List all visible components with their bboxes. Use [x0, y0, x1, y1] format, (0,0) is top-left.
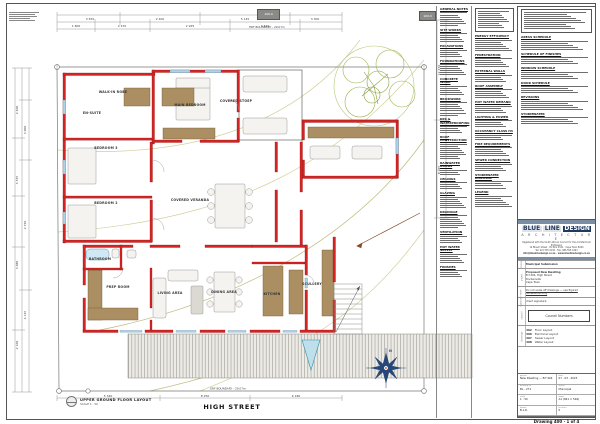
svg-text:3 900: 3 900: [23, 126, 27, 135]
note-line: [440, 19, 462, 20]
note-line: [440, 158, 460, 159]
notes-heading: HOT WATER DEMAND: [475, 101, 514, 104]
svg-text:1 800: 1 800: [72, 24, 81, 28]
note-line: [9, 18, 30, 19]
note-line: [440, 56, 462, 57]
notes-section: [475, 8, 514, 32]
note-line: [440, 270, 467, 271]
note-line: [440, 106, 460, 107]
note-line: [475, 75, 512, 76]
notes-section: STORMWATER: [521, 113, 592, 124]
note-line: [440, 205, 464, 206]
note-line: [440, 156, 458, 157]
notes-section: EXCAVATIONS: [440, 45, 468, 56]
note-line: [440, 199, 458, 200]
room-label: LIVING AREA: [157, 291, 182, 295]
note-line: [440, 17, 460, 18]
level-marker: 100.0: [257, 9, 280, 20]
title-block-strip: AREAS SCHEDULESCHEDULE OF FINISHESWINDOW…: [517, 6, 596, 418]
notes-section: HOT WATER SUPPLY: [440, 246, 468, 263]
notes-section: STORMWATER DISPOSAL: [475, 174, 514, 189]
notes-heading: WINDOW SCHEDULE: [521, 67, 592, 70]
drawing-number: 408: [526, 340, 532, 344]
note-line: [521, 92, 578, 93]
info-cell: paperA1 (841 × 594): [557, 395, 596, 406]
notes-heading: EXTERNAL WALLS: [475, 70, 514, 73]
note-line: [475, 62, 503, 63]
note-line: [440, 88, 458, 89]
note-line: [475, 48, 509, 49]
title-block-spacer: [518, 346, 595, 373]
info-grid: projectNew Dwelling — Erf 404date07 . 03…: [518, 373, 595, 416]
room-label: KITCHEN: [263, 292, 280, 296]
room-label: COVERED STOEP: [220, 99, 252, 103]
note-line: [475, 139, 503, 140]
note-line: [521, 86, 588, 87]
note-line: [475, 200, 503, 201]
note-line: [440, 188, 462, 189]
note-line: [475, 122, 501, 123]
note-line: [475, 183, 501, 184]
note-line: [440, 102, 467, 103]
note-line: [440, 41, 464, 42]
note-line: [475, 164, 512, 165]
note-line: [440, 240, 460, 241]
svg-text:6 180: 6 180: [292, 394, 301, 398]
note-line: [475, 112, 506, 113]
notes-value: Do not scale off drawings — use figured …: [526, 289, 592, 296]
notes-heading: GLAZING: [440, 192, 468, 195]
svg-text:8 250: 8 250: [201, 394, 210, 398]
note-line: [440, 64, 467, 65]
note-line: [475, 46, 506, 47]
info-cell: drawnB.L.D.: [518, 406, 557, 417]
firm-logo: BLUE LINE DESIGN A R C H I T E C T U R E…: [518, 224, 595, 257]
council-row-label: council: [520, 312, 523, 320]
note-line: [521, 74, 568, 75]
notes-heading: ROOF ASSEMBLY: [475, 85, 514, 88]
note-line: [9, 12, 39, 13]
note-line: [440, 115, 458, 116]
notes-heading: LEGEND: [475, 191, 514, 194]
info-cell-value: 0: [559, 409, 594, 412]
note-line: [524, 24, 566, 25]
note-line: [475, 206, 512, 207]
note-line: [475, 91, 501, 92]
notes-column-a: GENERAL NOTESSITE WORKSEXCAVATIONSFOUNDA…: [436, 6, 470, 418]
note-line: [475, 153, 506, 154]
view-title-block: UPPER GROUND FLOOR LAYOUT SCALE 1 : 50: [66, 396, 151, 407]
boundary-label-top: ERF BOUNDARY - 29.07m: [249, 25, 285, 29]
note-line: [475, 60, 501, 61]
info-cell: date07 . 03 . 2023: [557, 374, 596, 385]
note-line: [521, 78, 578, 79]
note-line: [440, 242, 462, 243]
drawing-title: Water Layout: [535, 340, 554, 344]
note-line: [440, 154, 466, 155]
note-line: [521, 63, 578, 64]
svg-text:2 400: 2 400: [156, 17, 165, 21]
room-label: EN-SUITE: [83, 111, 101, 115]
notes-heading: GENERAL NOTES: [440, 8, 468, 11]
svg-text:3 300: 3 300: [311, 17, 320, 21]
notes-heading: STORMWATER: [521, 113, 592, 116]
notes-section: REVISIONS: [521, 96, 592, 110]
status-row-label: status: [520, 261, 523, 268]
note-line: [521, 47, 578, 48]
note-line: [440, 132, 462, 133]
note-line: [440, 90, 460, 91]
note-line: [524, 20, 581, 21]
note-line: [440, 113, 466, 114]
brand-word-blue: BLUE: [522, 226, 542, 233]
brand-word-design: DESIGN: [563, 226, 592, 233]
note-line: [440, 201, 460, 202]
note-line: [475, 151, 503, 152]
note-line: [478, 11, 509, 12]
notes-heading: FINISHES: [440, 266, 468, 269]
notes-heading: FOUNDATIONS: [440, 60, 468, 63]
notes-heading: ENERGY EFFICIENCY: [475, 35, 514, 38]
notes-column-c: AREAS SCHEDULESCHEDULE OF FINISHESWINDOW…: [518, 7, 595, 219]
note-line: [521, 117, 588, 118]
note-line: [478, 19, 507, 20]
info-cell-value: 07 . 03 . 2023: [559, 377, 594, 380]
note-line: [440, 150, 462, 151]
notes-heading: EXCAVATIONS: [440, 45, 468, 48]
tree: [334, 46, 415, 126]
note-line: [475, 126, 506, 127]
staircase: [334, 284, 362, 334]
note-line: [521, 107, 578, 108]
note-line: [475, 79, 503, 80]
note-line: [521, 105, 573, 106]
note-line: [524, 12, 586, 13]
note-line: [440, 203, 462, 204]
note-line: [475, 149, 501, 150]
svg-text:5 145: 5 145: [241, 17, 250, 21]
note-line: [475, 108, 501, 109]
corner-notes: [9, 12, 39, 22]
note-line: [475, 58, 512, 59]
svg-text:4 470: 4 470: [118, 24, 127, 28]
note-line: [521, 121, 573, 122]
note-line: [521, 41, 588, 42]
note-line: [440, 94, 464, 95]
info-cell: drawing noBL - 271: [518, 385, 557, 396]
notes-heading: HOT WATER SUPPLY: [440, 246, 468, 253]
notes-section: FINISHES: [440, 266, 468, 277]
level-marker-value: 100.0: [264, 13, 273, 16]
north-label: N: [389, 349, 392, 353]
info-cell: revision0: [557, 406, 596, 417]
note-line: [440, 72, 464, 73]
info-cell: projectNew Dwelling — Erf 404: [518, 374, 557, 385]
note-line: [521, 49, 583, 50]
notes-heading: REVISIONS: [521, 96, 592, 99]
notes-section: RAINWATER GOODS: [440, 162, 468, 175]
view-scale: SCALE 1 : 50: [80, 402, 151, 406]
notes-section: EXTERNAL WALLS: [475, 70, 514, 81]
note-line: [440, 144, 467, 145]
level-marker: 100.0: [419, 11, 436, 21]
project-line: Cape Town: [526, 281, 592, 285]
notes-section: SEWER CONNECTION: [475, 159, 514, 170]
signature-value: client signature:: [526, 300, 592, 304]
note-line: [478, 15, 502, 16]
note-line: [478, 13, 500, 14]
leader-arrow: [357, 213, 420, 248]
project-row-label: project: [520, 274, 523, 282]
note-line: [440, 272, 458, 273]
svg-text:2 925: 2 925: [186, 24, 195, 28]
notes-section: HOT WATER DEMAND: [475, 101, 514, 112]
notes-section: VENTILATION: [440, 231, 468, 242]
note-line: [440, 128, 458, 129]
firm-contact-line: info@bluelinedesign.co.za · www.blueline…: [521, 253, 592, 256]
note-line: [475, 64, 506, 65]
note-line: [475, 81, 506, 82]
note-line: [440, 172, 458, 173]
svg-text:4 125: 4 125: [23, 311, 27, 320]
note-line: [475, 66, 509, 67]
note-line: [440, 52, 458, 53]
svg-text:2 740: 2 740: [23, 221, 27, 230]
note-line: [524, 18, 576, 19]
notes-section: LEGEND: [475, 191, 514, 207]
note-line: [524, 22, 585, 23]
note-line: [475, 147, 512, 148]
note-line: [440, 215, 467, 216]
notes-section: [521, 9, 592, 33]
info-cell-value: B.L.D.: [520, 409, 554, 412]
note-line: [475, 120, 512, 121]
notes-heading: DPC & WATERPROOFING: [440, 118, 468, 125]
note-line: [475, 89, 512, 90]
info-cell-value: A1 (841 × 594): [559, 398, 594, 401]
note-line: [475, 44, 503, 45]
note-line: [440, 146, 458, 147]
note-line: [440, 21, 464, 22]
note-line: [440, 33, 467, 34]
notes-heading: BRICKWORK: [440, 98, 468, 101]
note-line: [440, 104, 458, 105]
view-reference-icon: [66, 396, 77, 407]
note-line: [440, 219, 460, 220]
note-line: [475, 135, 512, 136]
note-line: [475, 40, 512, 41]
room-label: BEDROOM 3: [94, 146, 117, 150]
note-line: [440, 221, 462, 222]
notes-section: ROOF CONSTRUCTION: [440, 136, 468, 159]
note-line: [440, 50, 467, 51]
note-line: [475, 168, 503, 169]
notes-heading: SCHEDULE OF FINISHES: [521, 53, 592, 56]
notes-section: AREAS SCHEDULE: [521, 36, 592, 50]
timber-deck: [128, 334, 472, 378]
note-line: [440, 54, 460, 55]
note-line: [475, 204, 509, 205]
note-line: [475, 137, 501, 138]
note-line: [440, 238, 458, 239]
note-line: [440, 217, 458, 218]
note-line: [521, 61, 573, 62]
note-line: [521, 59, 568, 60]
note-line: [440, 223, 464, 224]
svg-text:4 535: 4 535: [15, 176, 19, 185]
note-line: [475, 124, 503, 125]
note-line: [440, 254, 467, 255]
note-line: [440, 110, 464, 111]
note-line: [9, 20, 35, 21]
drawing-list: 402Floor Layout406Electrical Layout407Se…: [526, 328, 592, 345]
note-line: [440, 15, 458, 16]
note-line: [524, 14, 567, 15]
room-label: BATHROOM: [89, 257, 111, 261]
notes-heading: FIRE REQUIREMENTS: [475, 143, 514, 146]
notes-section: SITE WORKS: [440, 29, 468, 43]
notes-heading: AREAS SCHEDULE: [521, 36, 592, 39]
room-label: COVERED VERANDA: [171, 198, 209, 202]
notes-heading: ROOF CONSTRUCTION: [440, 136, 468, 143]
note-line: [524, 16, 571, 17]
note-line: [9, 16, 37, 17]
notes-section: DRAINAGE: [440, 211, 468, 229]
notes-heading: SITE WORKS: [440, 29, 468, 32]
note-line: [475, 50, 512, 51]
status-row: status Municipal Submission: [518, 260, 595, 268]
notes-heading: LIGHTING & POWER: [475, 116, 514, 119]
note-line: [440, 276, 462, 277]
note-line: [440, 236, 467, 237]
notes-row-label: notes: [520, 289, 523, 295]
note-line: [475, 110, 503, 111]
note-line: [440, 186, 460, 187]
room-label: DINING AREA: [211, 290, 237, 294]
note-line: [521, 43, 568, 44]
note-line: [475, 188, 506, 189]
notes-row: notes Do not scale off drawings — use fi…: [518, 286, 595, 297]
note-line: [440, 182, 467, 183]
note-line: [440, 260, 462, 261]
note-line: [440, 258, 460, 259]
title-block: BLUE LINE DESIGN A R C H I T E C T U R E…: [518, 219, 595, 419]
note-line: [440, 207, 466, 208]
note-line: [440, 74, 466, 75]
notes-heading: DOOR SCHEDULE: [521, 82, 592, 85]
note-line: [440, 39, 462, 40]
notes-heading: CONCRETE WORK: [440, 78, 468, 85]
notes-heading: DRAINAGE: [440, 211, 468, 214]
note-line: [440, 25, 458, 26]
note-line: [9, 14, 35, 15]
notes-section: FENESTRATION: [475, 54, 514, 68]
note-line: [478, 27, 504, 28]
note-line: [521, 88, 568, 89]
notes-section: SCHEDULE OF FINISHES: [521, 53, 592, 64]
notes-heading: STORMWATER DISPOSAL: [475, 174, 514, 181]
note-line: [440, 197, 467, 198]
notes-heading: RAINWATER GOODS: [440, 162, 468, 169]
info-cell-value: 1 : 50: [520, 398, 554, 401]
status-value: Municipal Submission: [526, 263, 592, 267]
note-line: [524, 26, 571, 27]
note-line: [475, 166, 501, 167]
room-label: MAIN BEDROOM: [174, 103, 205, 107]
drawing-list-item: 408Water Layout: [526, 340, 592, 344]
note-line: [440, 256, 458, 257]
note-line: [478, 25, 502, 26]
council-row: council Council Numbers: [518, 305, 595, 325]
note-line: [475, 202, 506, 203]
notes-section: WINDOW SCHEDULE: [521, 67, 592, 78]
note-line: [475, 42, 501, 43]
notes-section: ENERGY EFFICIENCY: [475, 35, 514, 51]
note-line: [475, 93, 503, 94]
svg-text:3 680: 3 680: [15, 261, 19, 270]
info-cell-value: New Dwelling — Erf 404: [520, 377, 554, 380]
room-label: BEDROOM 2: [94, 201, 117, 205]
notes-section: GLAZING: [440, 192, 468, 208]
brand-architecture: A R C H I T E C T U R E: [521, 233, 592, 241]
note-line: [521, 90, 573, 91]
note-line: [440, 225, 466, 226]
note-line: [475, 181, 512, 182]
notes-section: DPC & WATERPROOFING: [440, 118, 468, 133]
notes-section: FIRE REQUIREMENTS: [475, 143, 514, 157]
room-label: SCULLERY: [302, 282, 322, 286]
street-label: HIGH STREET: [190, 403, 274, 411]
note-line: [440, 68, 460, 69]
note-line: [475, 97, 509, 98]
note-line: [475, 95, 506, 96]
note-line: [440, 12, 467, 13]
note-line: [521, 109, 583, 110]
note-line: [440, 174, 460, 175]
note-line: [440, 184, 458, 185]
notes-section: LIGHTING & POWER: [475, 116, 514, 127]
info-cell-value: BL - 271: [520, 388, 554, 391]
note-line: [440, 126, 467, 127]
note-line: [478, 23, 499, 24]
note-line: [440, 70, 462, 71]
note-line: [475, 77, 501, 78]
drawings-row-label: drawings: [520, 331, 523, 341]
note-line: [440, 170, 467, 171]
notes-section: DOOR SCHEDULE: [521, 82, 592, 93]
brand-word-line: LINE: [543, 226, 561, 233]
note-line: [475, 155, 509, 156]
drawings-row: drawings 402Floor Layout406Electrical La…: [518, 325, 595, 346]
note-line: [440, 66, 458, 67]
notes-heading: OCCUPANCY CLASS H4: [475, 130, 514, 133]
svg-text:3 870: 3 870: [86, 17, 95, 21]
notes-column-b: ENERGY EFFICIENCYFENESTRATIONEXTERNAL WA…: [471, 6, 516, 418]
note-line: [440, 152, 464, 153]
notes-heading: SEWER CONNECTION: [475, 159, 514, 162]
note-line: [440, 262, 464, 263]
notes-section: CONCRETE WORK: [440, 78, 468, 95]
note-line: [521, 57, 588, 58]
note-line: [475, 185, 503, 186]
note-line: [521, 123, 578, 124]
drawing-number-footer: Drawing 400 · 1 of 4: [518, 416, 595, 424]
level-marker-value: 100.0: [423, 15, 432, 18]
note-line: [440, 35, 458, 36]
room-label: PREP ROOM: [106, 285, 129, 289]
note-line: [478, 21, 509, 22]
note-line: [440, 86, 467, 87]
